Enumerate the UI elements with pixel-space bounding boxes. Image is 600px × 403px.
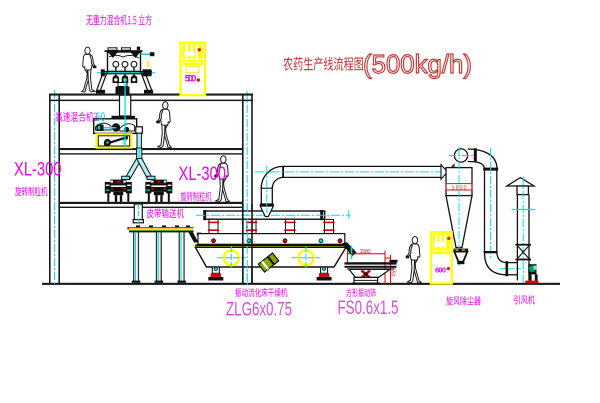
- svg-text:1500: 1500: [360, 249, 371, 255]
- svg-text:XL-300: XL-300: [179, 164, 227, 185]
- svg-text:(500kg/h): (500kg/h): [363, 49, 472, 79]
- svg-text:FS0.6x1.5: FS0.6x1.5: [338, 298, 399, 319]
- svg-text:600: 600: [435, 265, 446, 274]
- svg-text:XL-300: XL-300: [14, 160, 62, 181]
- svg-text:500: 500: [185, 74, 197, 85]
- svg-text:ZLG6x0.75: ZLG6x0.75: [226, 300, 292, 321]
